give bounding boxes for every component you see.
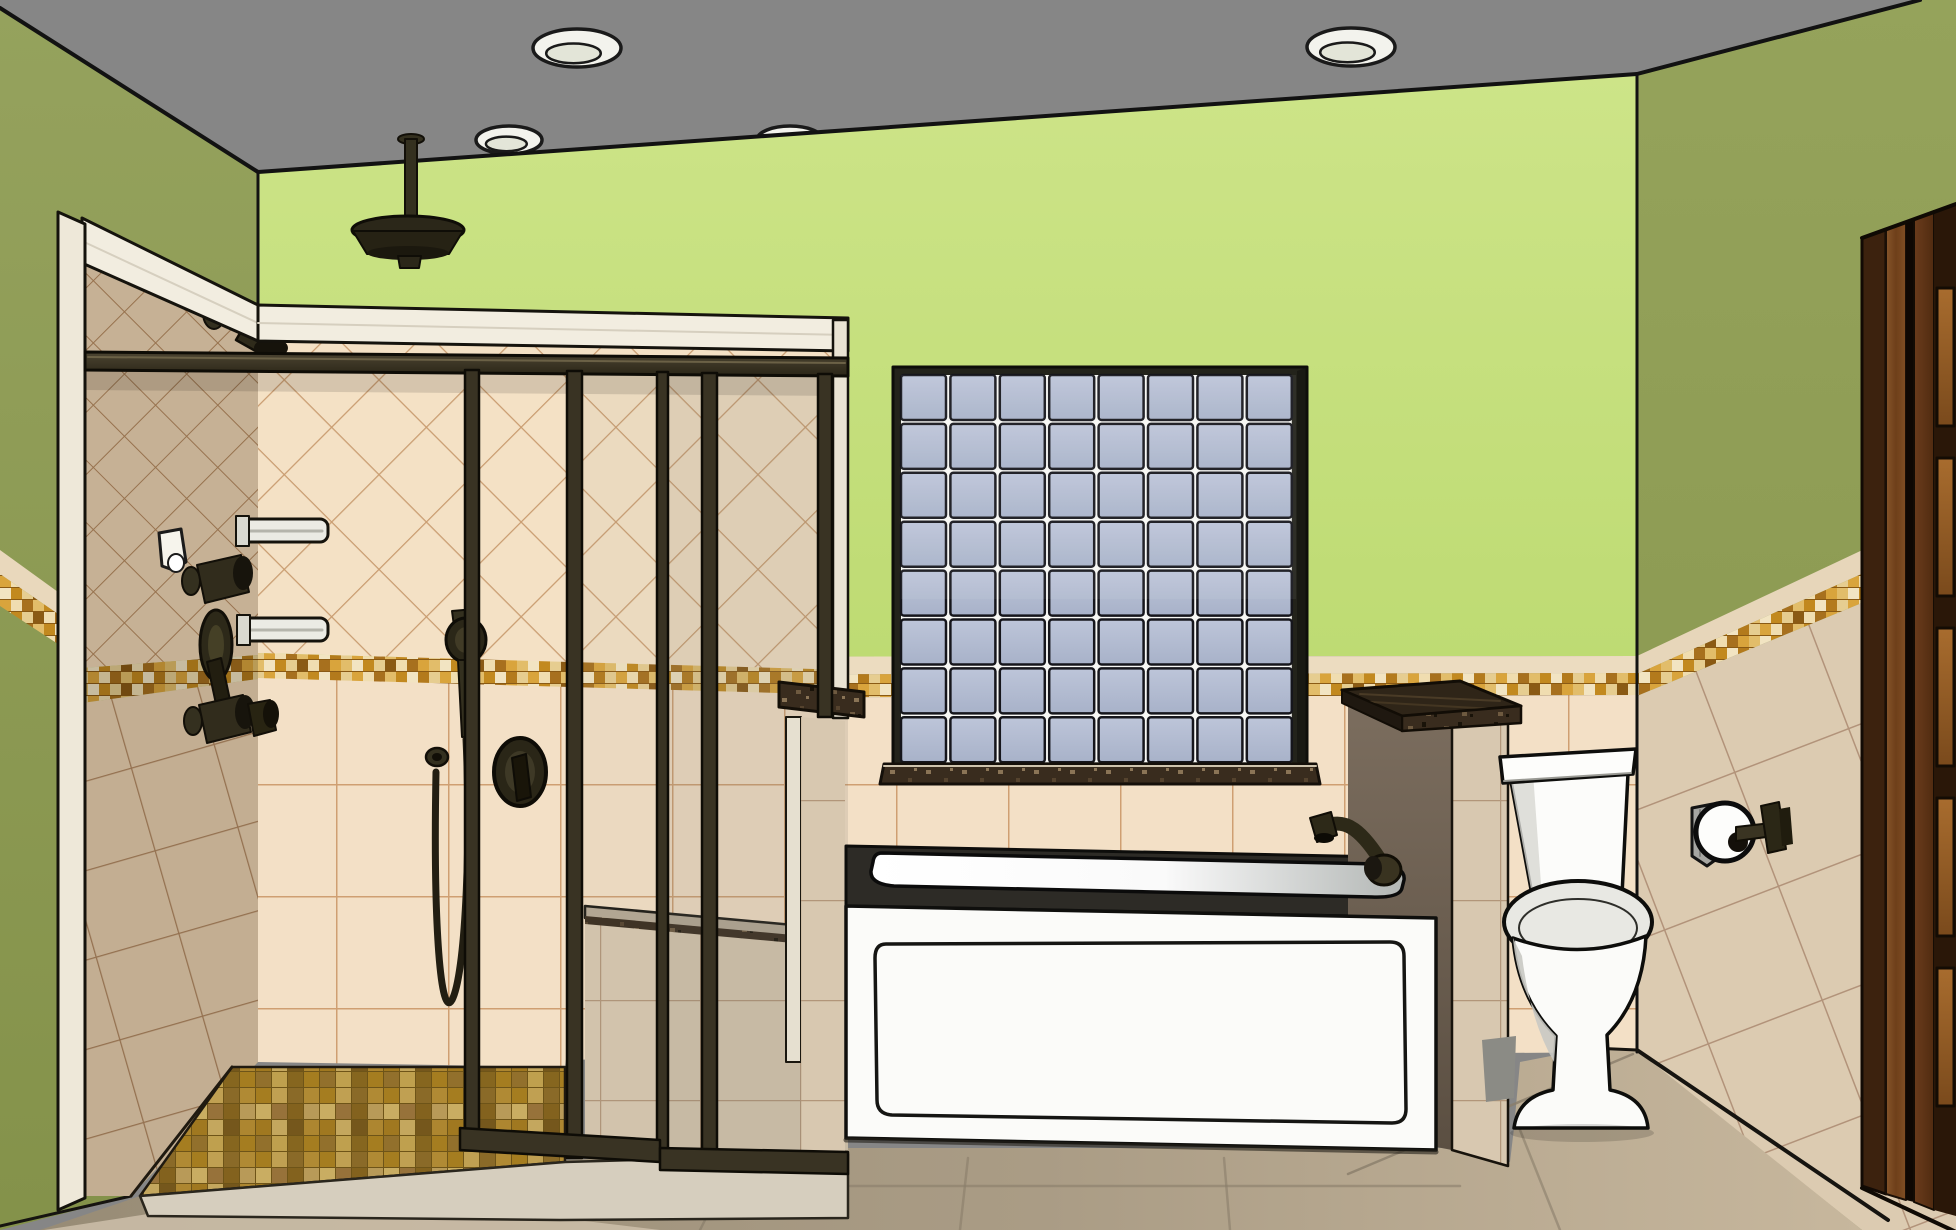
- scene-svg: [0, 0, 1956, 1230]
- shower-frame-stile: [465, 370, 479, 1140]
- door-pane: [1937, 288, 1954, 426]
- recessed-ceiling-light: [533, 29, 621, 67]
- rain-shower-head-nub: [398, 256, 421, 268]
- body-spray-lower2-face: [263, 700, 279, 728]
- glass-block: [1099, 668, 1144, 713]
- shower-right-post: [833, 320, 848, 718]
- glass-block: [1197, 668, 1242, 713]
- glass-block: [1247, 620, 1292, 665]
- shower-corner-post: [58, 212, 85, 1210]
- door-leaf-stile: [1914, 211, 1934, 1210]
- rain-shower-pipe: [405, 139, 417, 226]
- glass-block: [1148, 668, 1193, 713]
- glass-block: [1049, 620, 1094, 665]
- toilet-shadow-gap: [1482, 1036, 1516, 1102]
- glass-block: [1000, 668, 1045, 713]
- glass-block: [1049, 668, 1094, 713]
- door-pane: [1937, 798, 1954, 936]
- shower-door-bottom-rail: [660, 1148, 848, 1174]
- recessed-light-lamp: [546, 43, 601, 63]
- bathroom-render: [0, 0, 1956, 1230]
- recessed-light-lamp: [486, 137, 527, 152]
- recessed-ceiling-light: [1307, 28, 1395, 66]
- glass-block: [1000, 717, 1045, 762]
- glass-block: [1247, 717, 1292, 762]
- robe-hook-curl: [168, 554, 184, 572]
- glass-block: [950, 620, 995, 665]
- shower-frame-stile: [657, 372, 668, 1152]
- recessed-light-lamp: [1320, 42, 1375, 62]
- glass-block: [1099, 717, 1144, 762]
- door-jamb-face: [1886, 222, 1906, 1200]
- door-gap: [1906, 219, 1914, 1202]
- body-spray-upper-face: [233, 556, 253, 590]
- tub-faucet-mouth: [1314, 833, 1334, 843]
- shower-frame-stile: [818, 374, 832, 717]
- glass-block: [950, 717, 995, 762]
- door-pane: [1937, 628, 1954, 766]
- door-pane: [1937, 458, 1954, 596]
- glass-block: [901, 668, 946, 713]
- glass-block: [1148, 620, 1193, 665]
- grab-bar-flange: [237, 615, 250, 645]
- door-pane: [1937, 968, 1954, 1106]
- glass-block: [1197, 620, 1242, 665]
- glass-block: [901, 717, 946, 762]
- shower-frame-stile: [567, 371, 582, 1158]
- glass-block: [1148, 717, 1193, 762]
- recessed-ceiling-light: [476, 126, 542, 154]
- window-jamb-shadow: [1297, 367, 1307, 766]
- glass-block: [1049, 717, 1094, 762]
- glass-block: [1197, 717, 1242, 762]
- window-reflection: [901, 375, 1296, 599]
- glass-block: [1099, 620, 1144, 665]
- glass-block: [950, 668, 995, 713]
- knee-wall-tile: [801, 717, 845, 1152]
- toilet-floor-shadow: [1510, 1124, 1654, 1142]
- knee-wall-trim: [786, 717, 801, 1062]
- tub-faucet-ring: [1364, 856, 1382, 880]
- glass-block: [901, 620, 946, 665]
- hose-wall-outlet-hub: [432, 753, 442, 761]
- glass-block: [1247, 668, 1292, 713]
- glass-block: [1000, 620, 1045, 665]
- grab-bar-flange: [236, 516, 249, 546]
- shower-frame-stile: [702, 373, 717, 1170]
- door-jamb-outer: [1862, 229, 1886, 1194]
